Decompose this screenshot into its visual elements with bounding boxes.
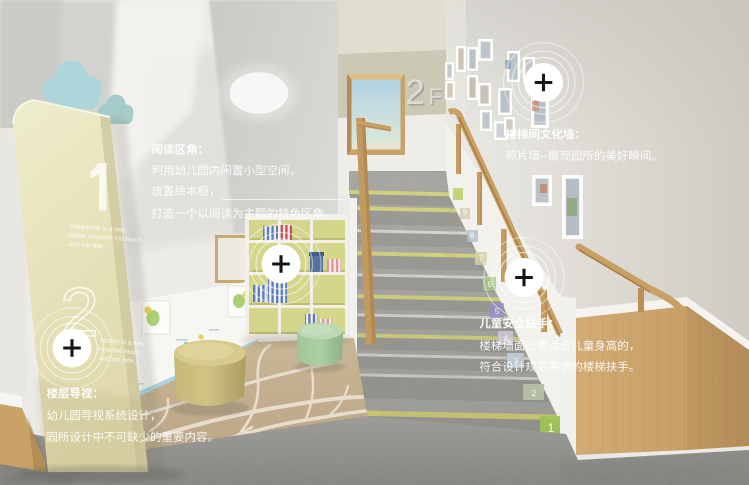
svg-text:8: 8 (470, 231, 475, 240)
svg-text:2: 2 (532, 389, 537, 398)
svg-text:6: 6 (488, 280, 493, 289)
svg-text:2: 2 (405, 73, 424, 112)
svg-text:9: 9 (463, 208, 468, 217)
svg-text:F: F (429, 84, 442, 109)
svg-text:3: 3 (514, 357, 519, 366)
svg-text:7: 7 (479, 254, 484, 263)
